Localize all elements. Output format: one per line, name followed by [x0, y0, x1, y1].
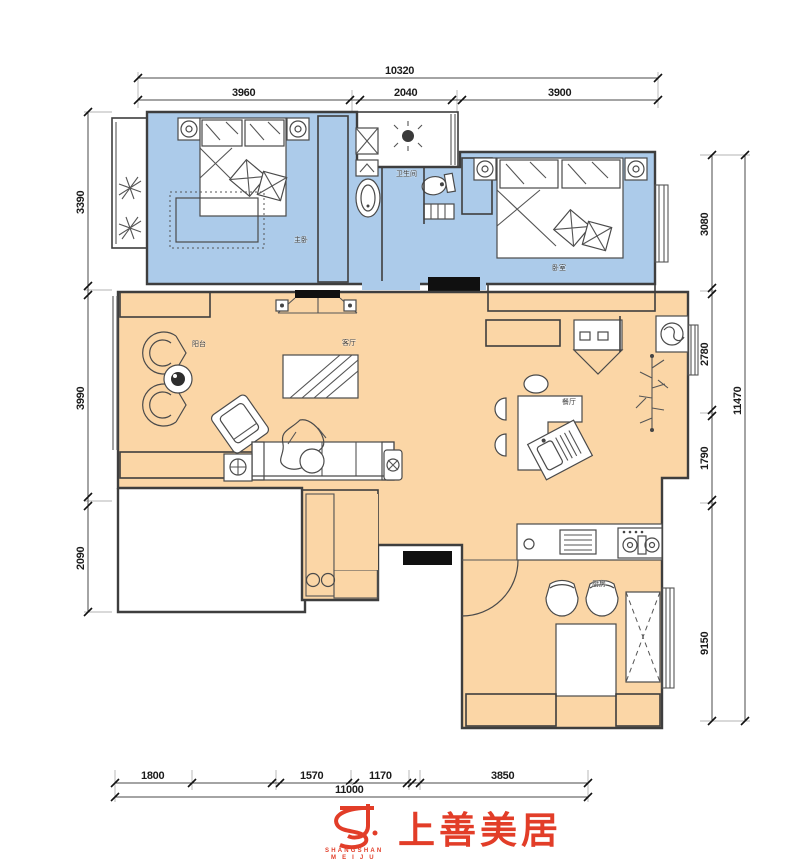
- round-side-table: [164, 365, 192, 393]
- structural-wall: [403, 551, 452, 565]
- dimension-bottom: 1800 1570 1170 3850 11000: [111, 770, 592, 802]
- steps: [424, 204, 454, 219]
- label-master-bedroom: 主卧: [294, 235, 308, 244]
- dim-left-seg1: 3390: [75, 191, 87, 214]
- dim-right-seg2: 2780: [699, 343, 711, 366]
- dim-bottom-seg4: 3850: [491, 770, 514, 782]
- dim-bottom-seg3: 1170: [369, 770, 392, 782]
- bedroom-zone: [112, 112, 668, 292]
- empty-room-outline: [118, 488, 305, 612]
- label-bathroom: 卫生间: [396, 169, 417, 178]
- dim-right-seg4: 9150: [699, 632, 711, 655]
- kitchen-counter: [517, 524, 662, 560]
- label-bedroom: 卧室: [552, 263, 566, 272]
- dimension-right: 3080 2780 1790 9150 11470: [699, 151, 750, 725]
- living-zone: [113, 284, 698, 728]
- dim-bottom-seg1: 1800: [141, 770, 164, 782]
- fridge: [656, 316, 688, 352]
- dimension-left: 3390 3990 2090: [75, 108, 112, 616]
- logo-en-line2: M E I J U: [331, 855, 376, 861]
- dim-top-seg3: 3900: [548, 87, 571, 99]
- label-dining-room: 餐厅: [562, 397, 576, 406]
- island-table: [556, 624, 616, 696]
- label-living-room: 客厅: [342, 338, 356, 347]
- dim-top-seg2: 2040: [394, 87, 417, 99]
- logo-mark: [336, 804, 377, 847]
- wardrobe-mirror: [626, 592, 660, 682]
- bedroom2-bed: [474, 158, 647, 258]
- dim-right-seg1: 3080: [699, 213, 711, 236]
- window-right-upper: [688, 325, 698, 375]
- dim-right-seg3: 1790: [699, 447, 711, 470]
- dim-left-seg3: 2090: [75, 547, 87, 570]
- dim-right-overall: 11470: [732, 386, 744, 415]
- floor-plan-page: 10320 3960 2040 3900 3390 3990 2090 3080…: [0, 0, 800, 861]
- dim-top-seg1: 3960: [232, 87, 255, 99]
- logo: SHANGSHAN M E I J U 上善美居: [325, 804, 562, 861]
- logo-brand-name: 上善美居: [398, 810, 562, 851]
- dim-left-seg2: 3990: [75, 387, 87, 410]
- label-balcony: 阳台: [192, 339, 206, 348]
- label-kitchen: 厨房: [592, 579, 606, 588]
- dimension-top: 10320 3960 2040 3900: [134, 65, 662, 112]
- plant-icon: [119, 177, 141, 199]
- dim-top-overall: 10320: [385, 65, 414, 77]
- ceiling-lamp-icon: [394, 121, 422, 151]
- lamp-end-table: [224, 454, 252, 481]
- floor-plan-drawing: 10320 3960 2040 3900 3390 3990 2090 3080…: [0, 0, 800, 861]
- plant-icon: [119, 217, 141, 239]
- window-bottom-right: [662, 588, 674, 688]
- logo-en-line1: SHANGSHAN: [325, 848, 383, 854]
- dim-bottom-seg2: 1570: [300, 770, 323, 782]
- structural-wall: [428, 277, 480, 292]
- chair: [546, 580, 578, 616]
- dim-bottom-overall: 11000: [335, 784, 364, 796]
- sofa-side-table: [384, 450, 402, 480]
- window-bedroom2: [655, 185, 668, 262]
- tea-table: [283, 355, 358, 398]
- window-living-left: [113, 296, 117, 450]
